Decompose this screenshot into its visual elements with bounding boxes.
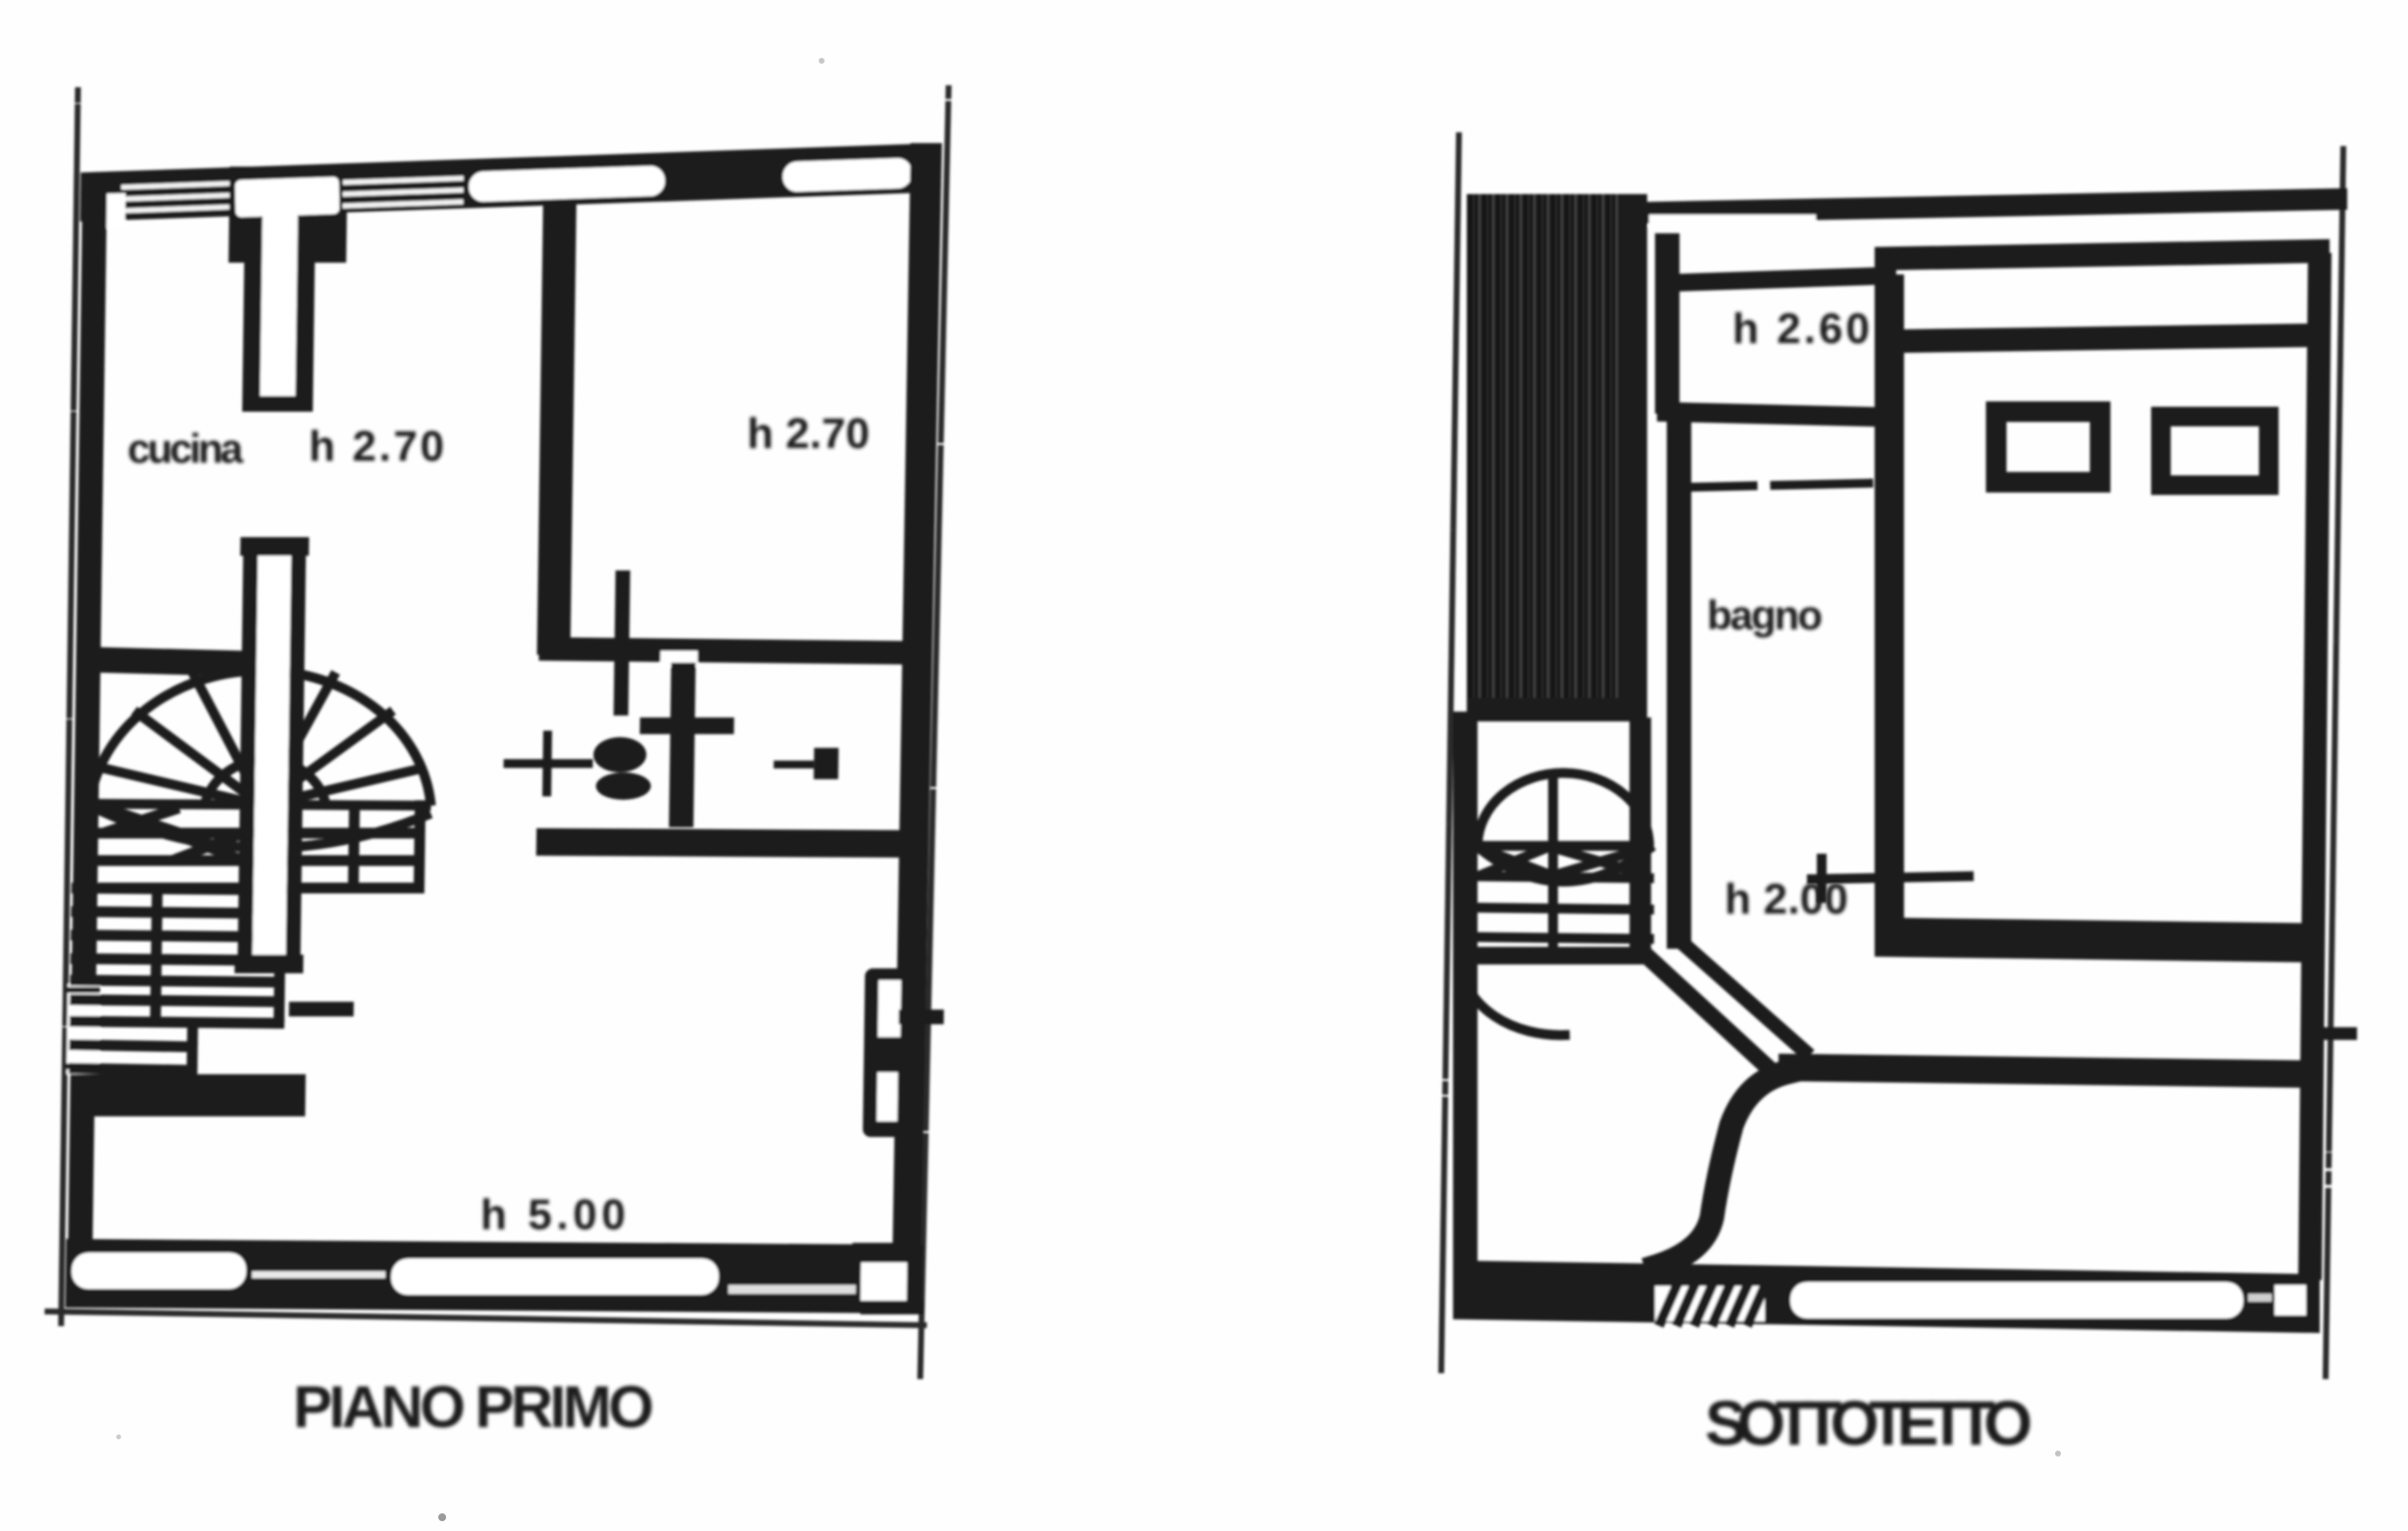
svg-text:PIANO PRIMO: PIANO PRIMO [293,1374,654,1440]
svg-text:h 2.00: h 2.00 [1725,875,1848,923]
svg-text:bagno: bagno [1707,592,1823,638]
svg-text:cucina: cucina [127,425,244,471]
svg-text:h 2.70: h 2.70 [747,410,870,458]
svg-text:SOTTOTETTO: SOTTOTETTO [1705,1388,2032,1458]
